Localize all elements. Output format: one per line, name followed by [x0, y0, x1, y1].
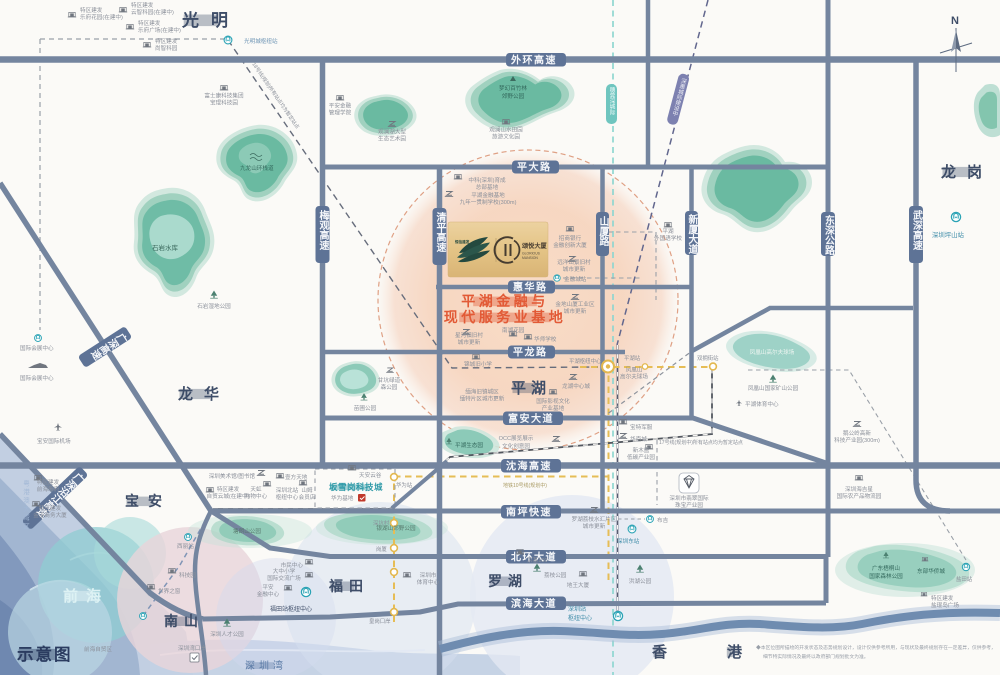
- svg-text:深圳坪山站: 深圳坪山站: [932, 230, 965, 239]
- svg-text:平湖站: 平湖站: [624, 354, 641, 362]
- svg-text:南坪快速: 南坪快速: [506, 506, 552, 519]
- svg-text:枢纽中心: 枢纽中心: [276, 493, 299, 501]
- svg-text:凤凰山国家矿山公园: 凤凰山国家矿山公园: [748, 384, 799, 392]
- svg-text:文化创意园: 文化创意园: [502, 442, 530, 450]
- svg-text:深圳美术馆/图书馆: 深圳美术馆/图书馆: [209, 472, 256, 480]
- svg-text:乐府广场(在建中): 乐府广场(在建中): [138, 26, 181, 34]
- svg-text:国际会展中心: 国际会展中心: [20, 344, 54, 352]
- svg-text:科技产业园(300m): 科技产业园(300m): [834, 436, 880, 444]
- svg-text:生态艺术园: 生态艺术园: [378, 135, 406, 143]
- svg-text:高尔夫球场: 高尔夫球场: [620, 373, 648, 381]
- svg-text:罗湖荔枝水汇片区: 罗湖荔枝水汇片区: [572, 515, 617, 523]
- svg-text:宝琨科技园: 宝琨科技园: [210, 99, 238, 107]
- svg-text:天安云谷: 天安云谷: [359, 471, 382, 479]
- svg-text:观澜山水田园: 观澜山水田园: [489, 126, 523, 134]
- svg-text:皇岗口岸: 皇岗口岸: [369, 617, 391, 625]
- svg-text:自贸云城(在建中): 自贸云城(在建中): [207, 492, 250, 500]
- svg-text:九年一贯制学校(300m): 九年一贯制学校(300m): [460, 198, 517, 206]
- svg-text:国际会展中心: 国际会展中心: [20, 374, 54, 382]
- svg-text:双拥街站: 双拥街站: [697, 354, 719, 362]
- svg-text:深圳海吉星: 深圳海吉星: [845, 485, 873, 493]
- svg-text:洪湖公园: 洪湖公园: [629, 577, 652, 585]
- svg-text:中科(深圳)育成: 中科(深圳)育成: [468, 176, 506, 184]
- svg-text:梅观高速: 梅观高速: [317, 209, 329, 251]
- svg-text:广东梧桐山: 广东梧桐山: [872, 564, 900, 572]
- svg-text:前海乐府: 前海乐府: [37, 485, 60, 493]
- svg-text:大中小学: 大中小学: [273, 567, 296, 575]
- svg-text:细节特实际情况及最终以政府部门规划批文为准。: 细节特实际情况及最终以政府部门规划批文为准。: [763, 653, 869, 660]
- svg-text:惠华路: 惠华路: [513, 281, 548, 294]
- svg-text:国际农产品物流园: 国际农产品物流园: [837, 492, 882, 500]
- svg-text:平湖枢纽中心: 平湖枢纽中心: [569, 357, 602, 365]
- svg-text:前海自贸区: 前海自贸区: [84, 645, 112, 653]
- svg-text:壹方天地: 壹方天地: [285, 473, 308, 481]
- svg-text:富安大道: 富安大道: [508, 412, 554, 425]
- svg-text:富士康科技集团: 富士康科技集团: [204, 92, 244, 100]
- svg-text:宝安: 宝安: [125, 493, 171, 509]
- svg-text:观澜湖大型: 观澜湖大型: [378, 128, 406, 136]
- svg-text:平湖体育中心: 平湖体育中心: [745, 400, 779, 408]
- svg-text:外环高速: 外环高速: [510, 54, 557, 67]
- svg-text:乐府花园(在建中): 乐府花园(在建中): [80, 13, 123, 21]
- svg-text:凤凰山高尔夫球场: 凤凰山高尔夫球场: [750, 348, 795, 356]
- svg-text:深圳北站: 深圳北站: [276, 486, 299, 494]
- svg-text:华师学校: 华师学校: [534, 335, 557, 343]
- svg-text:缅特片区城市更新: 缅特片区城市更新: [460, 395, 505, 403]
- svg-text:平湖金融与: 平湖金融与: [461, 293, 549, 309]
- svg-text:清平高速: 清平高速: [434, 211, 446, 253]
- svg-text:低碳产业园: 低碳产业园: [627, 453, 655, 461]
- svg-text:岗厦: 岗厦: [376, 546, 387, 553]
- svg-text:沈海高速: 沈海高速: [506, 460, 552, 473]
- svg-text:盐琨岛广场: 盐琨岛广场: [931, 601, 959, 609]
- svg-text:东深公路: 东深公路: [823, 214, 835, 256]
- svg-text:新厦大道: 新厦大道: [686, 213, 698, 255]
- svg-text:光明城枢纽站: 光明城枢纽站: [244, 37, 278, 45]
- svg-text:银湖山郊野公园: 银湖山郊野公园: [376, 524, 416, 532]
- svg-text:华为基地: 华为基地: [331, 494, 354, 502]
- svg-text:华南城: 华南城: [630, 435, 647, 443]
- svg-text:南湖花园: 南湖花园: [502, 326, 525, 334]
- svg-text:平龙路: 平龙路: [513, 346, 548, 359]
- svg-text:颂悦大厦: 颂悦大厦: [521, 242, 548, 250]
- svg-text:梦幻百竹林: 梦幻百竹林: [499, 84, 527, 92]
- svg-text:塘朗山公园: 塘朗山公园: [233, 527, 261, 535]
- svg-text:穗莞深城际: 穗莞深城际: [609, 86, 616, 116]
- svg-text:OCC展览展示: OCC展览展示: [499, 434, 534, 442]
- svg-text:东部华侨城: 东部华侨城: [917, 567, 945, 575]
- svg-text:特区建发: 特区建发: [217, 485, 240, 493]
- svg-text:旅游文化园: 旅游文化园: [492, 133, 520, 141]
- svg-text:西丽站: 西丽站: [177, 542, 194, 550]
- svg-text:滨海大道: 滨海大道: [511, 597, 557, 610]
- svg-text:山厦路: 山厦路: [597, 215, 609, 247]
- svg-text:城市更新: 城市更新: [458, 338, 481, 346]
- svg-text:罗湖: 罗湖: [488, 573, 528, 589]
- svg-text:管理学院: 管理学院: [329, 109, 352, 117]
- svg-text:特区建发: 特区建发: [155, 37, 178, 45]
- svg-text:缅海旧镇城区: 缅海旧镇城区: [465, 388, 499, 396]
- svg-text:鹅公岭高新: 鹅公岭高新: [843, 429, 871, 437]
- svg-text:特区建发: 特区建发: [37, 478, 60, 486]
- svg-text:金融创新大厦: 金融创新大厦: [553, 241, 587, 249]
- svg-text:会员店: 会员店: [299, 493, 316, 501]
- svg-text:天虹: 天虹: [250, 485, 262, 493]
- svg-text:深圳湾: 深圳湾: [245, 659, 287, 672]
- svg-text:平大路: 平大路: [517, 161, 552, 174]
- svg-text:盐田站: 盐田站: [956, 575, 973, 583]
- svg-text:尚智科园: 尚智科园: [155, 44, 178, 52]
- svg-text:17号线(规划中)所有站点均为暂定站点: 17号线(规划中)所有站点均为暂定站点: [659, 439, 743, 446]
- svg-text:示意图: 示意图: [17, 644, 73, 664]
- svg-text:龙华: 龙华: [177, 385, 230, 403]
- svg-text:平安金融: 平安金融: [329, 102, 352, 110]
- svg-text:购物中心: 购物中心: [245, 492, 268, 500]
- svg-text:深圳市翡翠国际: 深圳市翡翠国际: [669, 494, 709, 502]
- svg-text:前海: 前海: [63, 587, 109, 605]
- svg-text:地王大厦: 地王大厦: [567, 581, 590, 589]
- svg-text:平湖生态园: 平湖生态园: [455, 441, 483, 449]
- svg-text:科技园: 科技园: [179, 571, 196, 579]
- svg-text:光明: 光明: [181, 10, 240, 30]
- svg-text:平安: 平安: [262, 583, 274, 591]
- svg-text:特区建发: 特区建发: [931, 594, 954, 602]
- svg-text:深圳东站: 深圳东站: [617, 537, 640, 545]
- svg-text:福田站枢纽中心: 福田站枢纽中心: [270, 605, 312, 613]
- svg-text:山姆: 山姆: [301, 486, 313, 494]
- svg-text:郊野公园: 郊野公园: [502, 92, 525, 100]
- svg-text:特区建发: 特区建发: [39, 504, 62, 512]
- svg-text:星河镇旧村: 星河镇旧村: [455, 331, 483, 339]
- svg-text:市民中心: 市民中心: [281, 561, 304, 569]
- svg-text:招商银行: 招商银行: [559, 234, 582, 242]
- svg-text:总部基地: 总部基地: [476, 183, 499, 191]
- svg-text:国际交流广场: 国际交流广场: [267, 574, 301, 582]
- svg-text:地铁10号线(规划中): 地铁10号线(规划中): [503, 482, 547, 489]
- svg-text:特区建发: 特区建发: [131, 1, 154, 9]
- svg-text:特区建发: 特区建发: [80, 6, 103, 14]
- svg-text:新木盛: 新木盛: [633, 446, 650, 454]
- svg-text:坂雪岗科技城: 坂雪岗科技城: [329, 482, 383, 492]
- svg-text:国际影视文化: 国际影视文化: [536, 397, 570, 405]
- svg-text:深圳市: 深圳市: [420, 571, 437, 579]
- svg-text:◆本区位图所描绘的开发状态及态势规划设计，设计仅供参考所用，: ◆本区位图所描绘的开发状态及态势规划设计，设计仅供参考所用，与现状及最终规划存在…: [756, 644, 996, 651]
- svg-text:森公园: 森公园: [381, 383, 398, 391]
- svg-text:珠宝产业园: 珠宝产业园: [675, 501, 703, 509]
- svg-text:城市更新: 城市更新: [564, 307, 587, 315]
- svg-text:恒信建发: 恒信建发: [454, 239, 470, 244]
- svg-text:现代服务业基地: 现代服务业基地: [444, 309, 567, 325]
- svg-text:锦城旧小学: 锦城旧小学: [464, 360, 492, 368]
- svg-text:国家森林公园: 国家森林公园: [869, 572, 903, 580]
- svg-text:深圳人才公园: 深圳人才公园: [210, 630, 244, 638]
- svg-text:龙岗: 龙岗: [940, 163, 993, 181]
- svg-text:石岩水库: 石岩水库: [152, 243, 179, 252]
- svg-text:深圳湾口岸: 深圳湾口岸: [178, 644, 206, 652]
- svg-text:世界之窗: 世界之窗: [158, 587, 181, 595]
- svg-text:甘坑绿道: 甘坑绿道: [378, 376, 401, 384]
- svg-text:金融中心: 金融中心: [257, 590, 280, 598]
- svg-text:远洋山景旧村: 远洋山景旧村: [557, 258, 591, 266]
- svg-text:MANSION: MANSION: [522, 256, 538, 260]
- svg-text:宝特军服: 宝特军服: [630, 423, 653, 431]
- svg-text:平湖: 平湖: [511, 380, 551, 397]
- svg-text:福田: 福田: [328, 578, 369, 594]
- svg-text:宝安国际机场: 宝安国际机场: [37, 437, 71, 445]
- svg-text:平湖金融基地: 平湖金融基地: [471, 191, 505, 199]
- svg-text:九龙山环栈道: 九龙山环栈道: [240, 164, 274, 172]
- svg-text:云智科园(在建中): 云智科园(在建中): [131, 8, 174, 16]
- svg-text:特区建发: 特区建发: [138, 19, 161, 27]
- svg-text:金地山厦工业区: 金地山厦工业区: [555, 300, 595, 308]
- svg-text:南山: 南山: [164, 613, 204, 629]
- svg-text:城市更新: 城市更新: [583, 522, 606, 530]
- svg-text:N: N: [951, 15, 959, 27]
- svg-text:龙湖中心城: 龙湖中心城: [562, 382, 590, 390]
- svg-text:华为站: 华为站: [396, 481, 413, 489]
- svg-text:城市更新: 城市更新: [563, 265, 586, 273]
- svg-text:石岩湿地公园: 石岩湿地公园: [197, 302, 231, 310]
- svg-text:产业基地: 产业基地: [542, 404, 565, 412]
- svg-text:苗圃公园: 苗圃公园: [354, 404, 377, 412]
- svg-text:荔枝公园: 荔枝公园: [544, 571, 567, 579]
- svg-text:深圳站: 深圳站: [568, 605, 586, 613]
- svg-text:金港商务大厦: 金港商务大厦: [33, 511, 67, 519]
- svg-text:京基100: 京基100: [527, 556, 548, 564]
- svg-text:体育中心: 体育中心: [417, 578, 440, 586]
- svg-text:布吉: 布吉: [657, 516, 669, 524]
- svg-text:外国语学校: 外国语学校: [654, 234, 682, 242]
- svg-text:平湖: 平湖: [662, 227, 674, 235]
- svg-text:金融城站: 金融城站: [564, 275, 587, 283]
- svg-text:枢纽中心: 枢纽中心: [568, 614, 592, 622]
- svg-text:凤凰山: 凤凰山: [626, 366, 643, 374]
- svg-text:武深高速: 武深高速: [911, 209, 923, 251]
